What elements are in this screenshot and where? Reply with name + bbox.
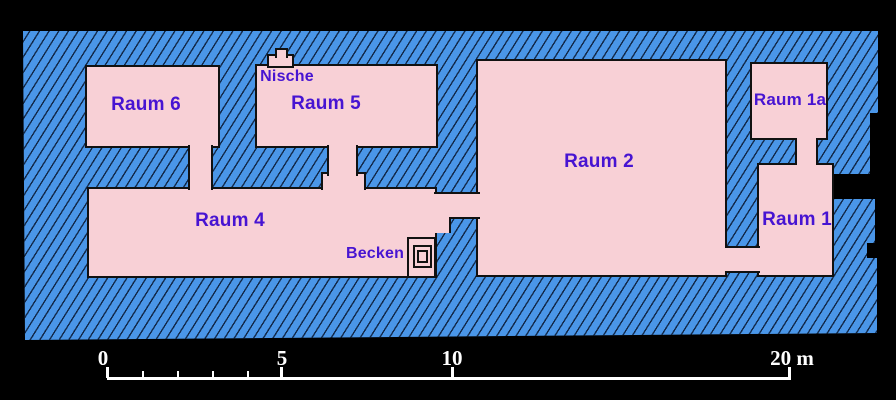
scale-label-20m: 20 m (760, 346, 824, 371)
scale-label-10: 10 (432, 346, 472, 371)
floor-plan: Raum 6 Raum 5 Raum 2 Raum 1a Raum 4 Raum… (0, 0, 896, 400)
scale-label-0: 0 (88, 346, 118, 371)
scale-minor-tick-4 (247, 371, 249, 378)
scale-minor-tick-2 (177, 371, 179, 378)
scale-bar: 0 5 10 20 m (0, 0, 896, 400)
scale-label-5: 5 (267, 346, 297, 371)
scale-minor-tick-3 (212, 371, 214, 378)
scale-minor-tick-1 (142, 371, 144, 378)
scale-bar-line (107, 377, 791, 380)
